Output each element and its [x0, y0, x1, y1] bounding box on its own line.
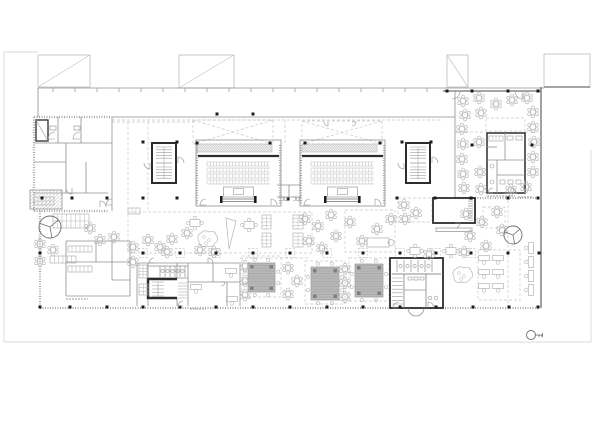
round-table-chair [182, 229, 185, 232]
round-table-chair [463, 182, 466, 185]
round-table-chair [467, 111, 470, 114]
round-table-chair [491, 105, 494, 108]
round-table [285, 265, 290, 270]
round-table-chair [479, 175, 482, 178]
round-table-chair [407, 215, 410, 218]
desk-chair [496, 289, 500, 293]
round-table-chair [244, 260, 247, 263]
round-table-chair [424, 250, 427, 253]
column-dot [71, 197, 74, 200]
stair-treads [392, 278, 403, 304]
round-table-chair [511, 94, 514, 97]
round-table-chair [52, 253, 55, 256]
round-table-chair [474, 143, 477, 146]
column-dot [269, 142, 272, 145]
round-table-chair [159, 241, 162, 244]
column-dot [289, 252, 292, 255]
round-table [493, 101, 498, 106]
door-arc [452, 91, 460, 99]
round-table-chair [290, 269, 293, 272]
round-table-chair [458, 175, 461, 178]
round-table-chair [485, 240, 488, 243]
column-dot [537, 197, 540, 200]
wc-toilet [399, 264, 402, 267]
zone-dashed-rect [483, 207, 505, 228]
round-table-chair [498, 105, 501, 108]
round-table-chair [457, 160, 460, 163]
round-table-chair [321, 242, 324, 245]
round-table-chair [113, 231, 116, 234]
auditorium-seat-row [311, 174, 374, 178]
round-table-chair [526, 101, 529, 104]
round-table-chair [535, 123, 538, 126]
round-table-chair [492, 213, 495, 216]
square-table-chair [420, 249, 423, 252]
round-table-chair [462, 177, 465, 180]
auditorium-hatch-band [302, 144, 377, 152]
round-table-chair [147, 234, 150, 237]
round-table-chair [465, 102, 468, 105]
round-table-chair [403, 208, 406, 211]
round-table-chair [155, 243, 158, 246]
round-table-chair [290, 290, 293, 293]
round-table-chair [526, 92, 529, 95]
round-table-chair [532, 130, 535, 133]
door-arc [221, 282, 225, 286]
round-table [328, 212, 333, 217]
square-table-chair [247, 229, 250, 232]
round-table-chair [477, 223, 480, 226]
round-table-chair [411, 209, 414, 212]
round-table-chair [376, 232, 379, 235]
round-table-chair [349, 216, 352, 219]
round-table-chair [48, 251, 51, 254]
stage-bar [254, 196, 257, 203]
patio-corner [378, 292, 382, 296]
round-table-chair [528, 173, 531, 176]
round-table-chair [466, 189, 469, 192]
revolving-door-leaf [50, 227, 52, 238]
round-table-chair [35, 262, 38, 265]
round-table-chair [331, 237, 334, 240]
round-table-chair [147, 243, 150, 246]
round-table-chair [457, 130, 460, 133]
round-table-chair [317, 220, 320, 223]
round-table-chair [495, 107, 498, 110]
door-arc [398, 163, 404, 169]
desk [191, 285, 202, 290]
column-dot [507, 197, 510, 200]
round-table-chair [320, 227, 323, 230]
column-dot [69, 306, 72, 309]
round-table-chair [481, 94, 484, 97]
round-table [130, 244, 135, 249]
round-table-chair [171, 233, 174, 236]
square-table-chair [200, 221, 203, 224]
round-table-chair [465, 140, 468, 143]
round-table-chair [292, 282, 295, 285]
round-table-chair [287, 271, 290, 274]
round-table-chair [338, 237, 341, 240]
patio-chair [253, 258, 256, 261]
square-table [190, 220, 200, 227]
canopy [544, 54, 590, 87]
round-table-chair [400, 215, 403, 218]
round-table-chair [55, 246, 58, 249]
round-table [459, 126, 464, 131]
round-table [145, 237, 150, 242]
auditorium-seat-row [207, 168, 270, 172]
wc-toilet [420, 264, 423, 267]
column-dot [215, 306, 218, 309]
round-table [459, 156, 464, 161]
round-table-chair [479, 166, 482, 169]
round-table [359, 238, 364, 243]
round-table-chair [482, 168, 485, 171]
round-table-chair [135, 243, 138, 246]
zone-dashed-rect [486, 118, 525, 131]
round-table-chair [213, 246, 216, 249]
round-table-chair [216, 248, 219, 251]
bench [436, 228, 472, 232]
door-arc [100, 201, 106, 207]
round-table-chair [460, 116, 463, 119]
round-table-chair [174, 235, 177, 238]
desk [529, 257, 534, 268]
desk-chair [229, 274, 233, 278]
column-dot [106, 197, 109, 200]
round-table-chair [195, 246, 198, 249]
round-table [242, 263, 247, 268]
round-table [460, 171, 465, 176]
round-table-chair [304, 237, 307, 240]
round-table [50, 247, 55, 252]
round-table-chair [514, 96, 517, 99]
round-table-chair [132, 250, 135, 253]
stage-bar [220, 196, 223, 203]
round-table-chair [386, 215, 389, 218]
round-table-chair [340, 265, 343, 268]
round-table-chair [536, 143, 539, 146]
round-table-chair [143, 241, 146, 244]
column-dot [106, 306, 109, 309]
column-dot [507, 90, 510, 93]
round-table-chair [499, 208, 502, 211]
patio-corner [313, 269, 317, 273]
wc-toilet [176, 269, 179, 272]
basin-fixture [420, 277, 424, 280]
round-table [294, 278, 299, 283]
round-table-chair [528, 153, 531, 156]
column-dot [215, 252, 218, 255]
wc-toilet [161, 269, 164, 272]
wc-toilet [171, 269, 174, 272]
plant-blob [453, 267, 473, 283]
column-dot [326, 252, 329, 255]
round-table [530, 124, 535, 129]
round-table-chair [92, 224, 95, 227]
round-table [478, 110, 483, 115]
round-table-chair [244, 284, 247, 287]
round-table-chair [300, 215, 303, 218]
round-table-chair [296, 284, 299, 287]
round-table [401, 202, 406, 207]
stage-bar [324, 196, 327, 203]
sink-fixture [74, 126, 80, 130]
round-table-chair [116, 238, 119, 241]
round-table-chair [481, 138, 484, 141]
round-table-chair [132, 256, 135, 259]
column-dot [142, 252, 145, 255]
round-table-chair [532, 115, 535, 118]
round-table [402, 216, 407, 221]
round-table-chair [340, 270, 343, 273]
round-table [461, 185, 466, 190]
round-table-chair [463, 191, 466, 194]
round-table-chair [465, 170, 468, 173]
wc-toilet [413, 264, 416, 267]
round-table-chair [463, 246, 466, 249]
round-table-chair [529, 99, 532, 102]
round-table-chair [536, 138, 539, 141]
desk [529, 285, 534, 296]
round-table-chair [496, 215, 499, 218]
patio-corner [270, 265, 274, 269]
round-table-chair [52, 244, 55, 247]
round-table-chair [535, 108, 538, 111]
round-table-chair [465, 145, 468, 148]
round-table-chair [514, 101, 517, 104]
round-table-chair [415, 216, 418, 219]
column-dot [470, 252, 473, 255]
round-table-chair [340, 293, 343, 296]
sink-fixture [50, 126, 56, 130]
round-table [111, 234, 116, 239]
round-table-chair [379, 230, 382, 233]
round-table [478, 186, 483, 191]
round-table-chair [495, 98, 498, 101]
column-dot [39, 306, 42, 309]
patio-corner [250, 287, 254, 291]
round-table-chair [244, 298, 247, 301]
patio-corner [378, 266, 382, 270]
round-table-chair [478, 92, 481, 95]
round-table-chair [386, 220, 389, 223]
stair-treads [152, 282, 164, 296]
round-table [530, 154, 535, 159]
round-table-chair [535, 153, 538, 156]
round-table-chair [399, 206, 402, 209]
round-table-chair [464, 160, 467, 163]
round-table-chair [287, 288, 290, 291]
round-table-chair [317, 249, 320, 252]
round-table-chair [345, 218, 348, 221]
round-table [97, 237, 102, 242]
patio-chair [350, 272, 353, 275]
round-table-chair [458, 97, 461, 100]
canopy-diagonal [38, 55, 90, 87]
column-dot [434, 197, 437, 200]
round-table-chair [476, 109, 479, 112]
round-table-chair [89, 231, 92, 234]
round-table-chair [169, 248, 172, 251]
round-table-chair [462, 104, 465, 107]
wc-toilet [428, 296, 432, 300]
round-table-chair [290, 264, 293, 267]
round-table-chair [35, 240, 38, 243]
round-table-chair [390, 213, 393, 216]
round-table-chair [313, 227, 316, 230]
column-dot [326, 306, 329, 309]
round-table [164, 249, 169, 254]
desk-chair [524, 260, 528, 264]
door-arc [200, 199, 206, 205]
round-table-chair [340, 298, 343, 301]
plant-blob-dot [205, 242, 208, 245]
plant-leaf [226, 218, 236, 249]
round-table-chair [475, 173, 478, 176]
column-dot [472, 306, 475, 309]
round-table-chair [476, 190, 479, 193]
round-table-chair [42, 240, 45, 243]
round-table [463, 211, 468, 216]
round-table [460, 141, 465, 146]
patio-corner [334, 269, 338, 273]
round-table-chair [464, 109, 467, 112]
column-dot [401, 141, 404, 144]
round-table-chair [283, 295, 286, 298]
round-table-chair [92, 229, 95, 232]
column-dot [289, 306, 292, 309]
basin-fixture [414, 277, 418, 280]
patio-chair [253, 294, 256, 297]
kitchen-fixture [516, 180, 521, 184]
round-table-chair [477, 218, 480, 221]
round-table-chair [535, 128, 538, 131]
door-arc [178, 301, 183, 306]
column-dot [508, 306, 511, 309]
door-arc [149, 258, 154, 263]
round-table-chair [143, 236, 146, 239]
round-table [467, 233, 472, 238]
desk-chair [496, 261, 500, 265]
column-dot [507, 252, 510, 255]
square-table-chair [413, 244, 416, 247]
round-table-chair [95, 236, 98, 239]
round-table-chair [304, 222, 307, 225]
round-table-chair [484, 218, 487, 221]
round-table-chair [357, 237, 360, 240]
auditorium-seat-row [207, 180, 270, 184]
round-table [319, 245, 324, 250]
column-dot [216, 113, 219, 116]
round-table-chair [372, 225, 375, 228]
desk-chair [524, 288, 528, 292]
round-table-chair [501, 233, 504, 236]
round-table-chair [528, 113, 531, 116]
round-table-chair [532, 160, 535, 163]
round-table [347, 219, 352, 224]
desk-chair [496, 275, 500, 279]
round-table-chair [463, 255, 466, 258]
column-dot [39, 252, 42, 255]
desk-chair [482, 261, 486, 265]
round-table-chair [317, 244, 320, 247]
wc-toilet [427, 264, 430, 267]
round-table-chair [428, 248, 431, 251]
column-dot [435, 306, 438, 309]
round-table-chair [499, 213, 502, 216]
round-table-chair [304, 213, 307, 216]
round-table [479, 219, 484, 224]
round-table-chair [469, 239, 472, 242]
round-table-chair [292, 277, 295, 280]
round-table-chair [458, 145, 461, 148]
round-table-chair [498, 100, 501, 103]
round-table-chair [349, 225, 352, 228]
round-table-chair [480, 107, 483, 110]
round-table-chair [488, 242, 491, 245]
round-table-chair [345, 223, 348, 226]
round-table-chair [186, 227, 189, 230]
round-table-chair [418, 209, 421, 212]
round-table [483, 243, 488, 248]
round-table-chair [482, 173, 485, 176]
column-dot [304, 142, 307, 145]
round-table-chair [307, 220, 310, 223]
round-table-chair [99, 243, 102, 246]
round-table-chair [462, 95, 465, 98]
round-table [285, 291, 290, 296]
square-table-chair [407, 249, 410, 252]
auditorium-seat-row [311, 162, 374, 166]
desk-chair [482, 289, 486, 293]
round-table-chair [458, 102, 461, 105]
round-table-chair [313, 222, 316, 225]
round-table-chair [357, 242, 360, 245]
round-table-chair [535, 168, 538, 171]
square-table-chair [247, 218, 250, 221]
round-table-chair [491, 100, 494, 103]
round-table-chair [458, 170, 461, 173]
round-table-chair [528, 188, 531, 191]
floor-plan-drawing [0, 0, 600, 424]
desk-chair [194, 290, 198, 294]
round-table-chair [155, 248, 158, 251]
square-table-chair [443, 249, 446, 252]
desk [529, 243, 534, 254]
column-dot [446, 90, 449, 93]
round-table-chair [186, 236, 189, 239]
round-table-chair [510, 184, 513, 187]
round-table-chair [483, 114, 486, 117]
round-table-chair [478, 136, 481, 139]
round-table-chair [308, 244, 311, 247]
round-table-chair [167, 240, 170, 243]
square-table-chair [449, 255, 452, 258]
desk [226, 269, 237, 274]
round-table-chair [42, 262, 45, 265]
round-table-chair [372, 230, 375, 233]
desk [493, 284, 504, 289]
round-table-chair [299, 277, 302, 280]
round-table-chair [400, 220, 403, 223]
column-dot [537, 306, 540, 309]
round-table-chair [457, 155, 460, 158]
round-table-chair [497, 231, 500, 234]
patio-chair [306, 289, 309, 292]
round-table [460, 98, 465, 103]
